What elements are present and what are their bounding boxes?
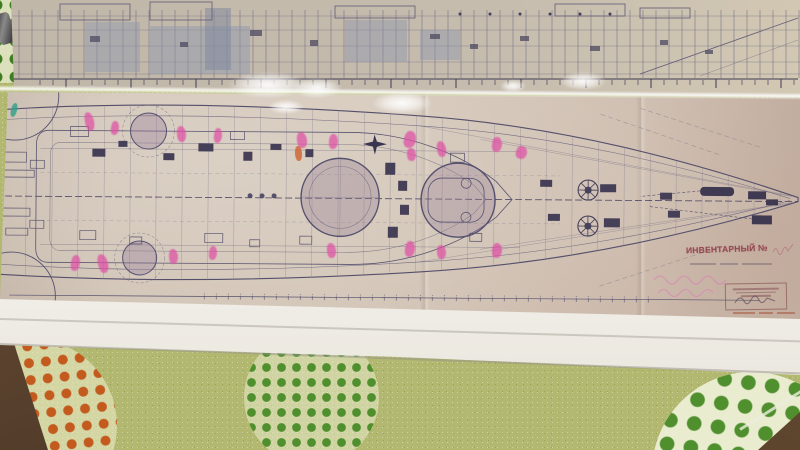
- scale-ruler-major-ticks: [30, 79, 798, 88]
- handwritten-number: [772, 243, 798, 255]
- elevation-linework: [0, 0, 800, 97]
- highlighter-mark: [407, 148, 417, 162]
- funnel-wash: [205, 8, 231, 70]
- bottom-ruler-ticks: [199, 293, 659, 302]
- photo-of-ship-blueprints: ИНВЕНТАРНЫЙ №: [0, 0, 800, 450]
- pink-handwriting: [652, 272, 744, 300]
- faint-red-caption: [733, 312, 795, 314]
- faint-printed-line: [690, 263, 772, 265]
